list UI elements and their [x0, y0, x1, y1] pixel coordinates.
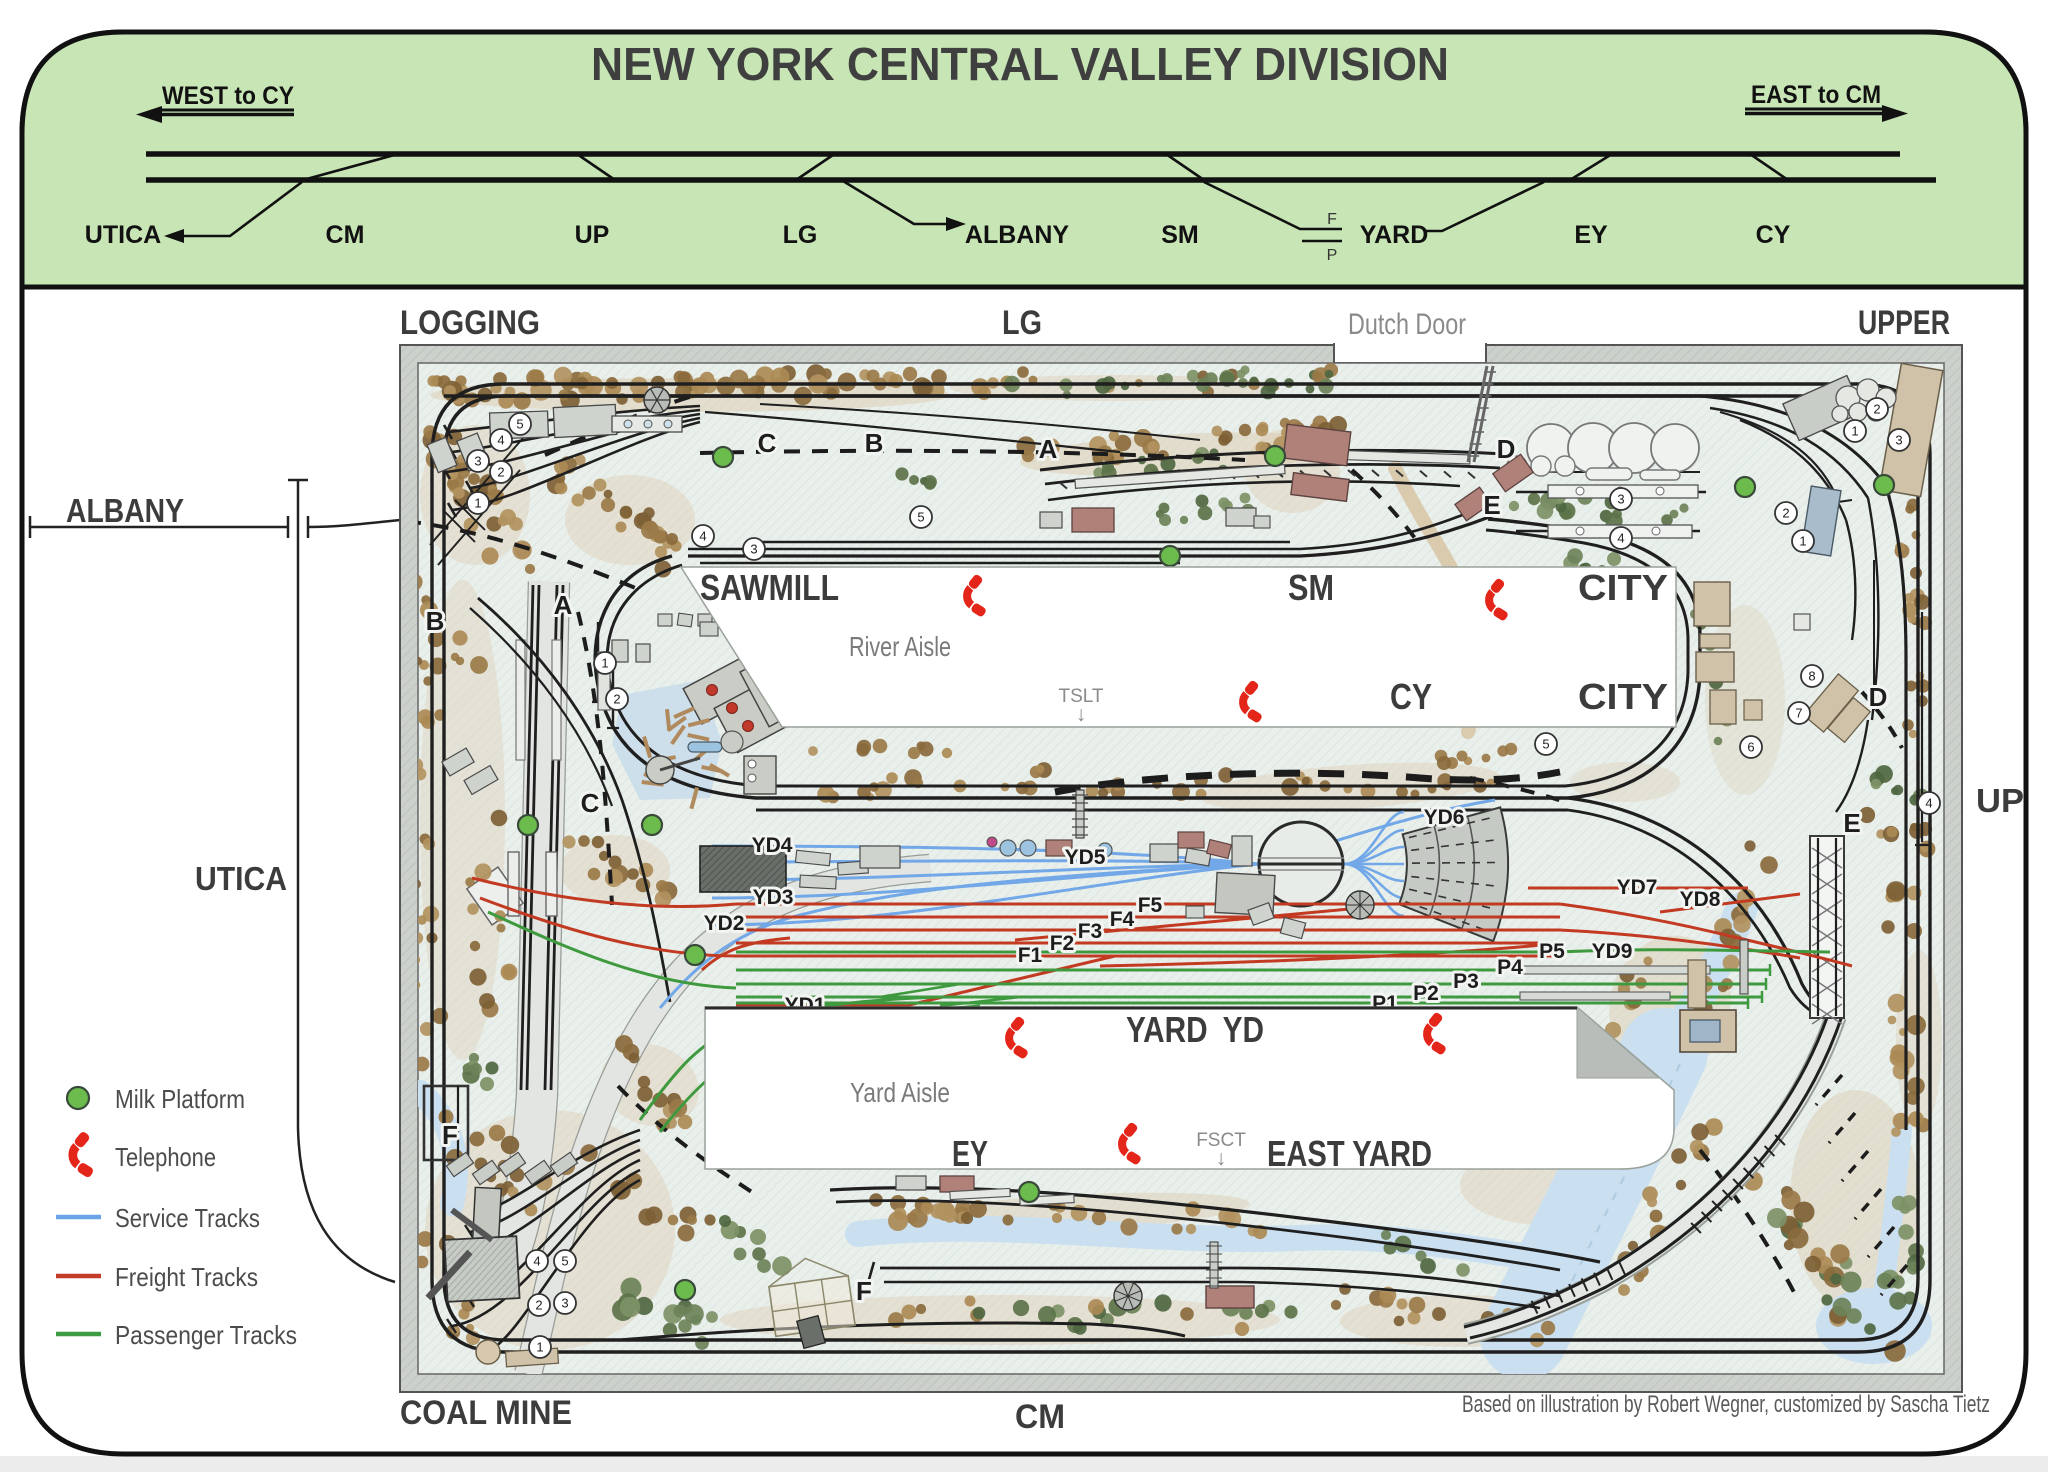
- svg-text:YD5: YD5: [1065, 846, 1106, 869]
- svg-text:Dutch Door: Dutch Door: [1348, 308, 1466, 341]
- svg-text:EY: EY: [952, 1133, 988, 1174]
- svg-text:2: 2: [1782, 506, 1789, 521]
- svg-text:2: 2: [613, 692, 620, 707]
- svg-text:SAWMILL: SAWMILL: [700, 567, 839, 608]
- svg-text:CM: CM: [1015, 1398, 1065, 1436]
- svg-text:5: 5: [561, 1254, 568, 1269]
- svg-text:B: B: [865, 428, 884, 458]
- svg-text:P5: P5: [1539, 940, 1565, 963]
- svg-text:7: 7: [1795, 706, 1802, 721]
- svg-text:CY: CY: [1756, 221, 1791, 249]
- svg-text:Milk Platform: Milk Platform: [115, 1084, 245, 1114]
- svg-text:Telephone: Telephone: [115, 1142, 216, 1172]
- svg-text:5: 5: [516, 417, 523, 432]
- svg-text:CY: CY: [1390, 676, 1432, 717]
- svg-text:F4: F4: [1110, 908, 1135, 931]
- svg-text:YD6: YD6: [1424, 806, 1465, 829]
- svg-text:2: 2: [1873, 402, 1880, 417]
- svg-text:Passenger Tracks: Passenger Tracks: [115, 1320, 297, 1350]
- svg-text:EAST YARD: EAST YARD: [1267, 1133, 1432, 1174]
- svg-text:1: 1: [474, 496, 481, 511]
- svg-text:SM: SM: [1161, 221, 1199, 249]
- svg-text:1: 1: [1851, 424, 1858, 439]
- svg-text:ALBANY: ALBANY: [965, 221, 1069, 249]
- svg-text:4: 4: [1617, 531, 1624, 546]
- svg-text:B: B: [426, 606, 445, 636]
- svg-text:ALBANY: ALBANY: [66, 492, 184, 529]
- svg-text:SM: SM: [1288, 567, 1334, 608]
- svg-text:Freight Tracks: Freight Tracks: [115, 1262, 258, 1292]
- svg-text:EAST to CM: EAST to CM: [1751, 81, 1881, 109]
- svg-text:YD3: YD3: [753, 886, 794, 909]
- svg-text:F3: F3: [1078, 920, 1103, 943]
- svg-text:LOGGING: LOGGING: [400, 304, 540, 342]
- svg-text:F: F: [856, 1276, 872, 1306]
- svg-text:F5: F5: [1138, 894, 1163, 917]
- svg-text:4: 4: [699, 529, 706, 544]
- svg-text:UPPER: UPPER: [1858, 304, 1950, 342]
- svg-text:YD7: YD7: [1617, 876, 1658, 899]
- svg-text:LG: LG: [1002, 304, 1042, 342]
- svg-text:4: 4: [1925, 796, 1932, 811]
- svg-text:P3: P3: [1453, 970, 1479, 993]
- svg-text:4: 4: [497, 433, 504, 448]
- svg-text:YD9: YD9: [1592, 940, 1633, 963]
- svg-text:A: A: [554, 590, 573, 620]
- svg-text:UTICA: UTICA: [85, 221, 161, 249]
- svg-text:P: P: [1327, 247, 1338, 264]
- svg-text:YARD: YARD: [1360, 221, 1429, 249]
- svg-text:↓: ↓: [1076, 703, 1087, 726]
- svg-text:F2: F2: [1050, 932, 1075, 955]
- svg-text:COAL MINE: COAL MINE: [400, 1394, 572, 1432]
- svg-text:3: 3: [1895, 433, 1902, 448]
- svg-text:2: 2: [535, 1298, 542, 1313]
- svg-text:4: 4: [533, 1254, 540, 1269]
- svg-text:1: 1: [601, 656, 608, 671]
- svg-text:YARD YD: YARD YD: [1126, 1009, 1264, 1050]
- svg-text:↓: ↓: [1216, 1147, 1227, 1170]
- svg-text:UP: UP: [575, 221, 610, 249]
- svg-text:LG: LG: [783, 221, 818, 249]
- svg-text:A: A: [1039, 434, 1058, 464]
- svg-text:E: E: [1843, 808, 1860, 838]
- svg-text:P4: P4: [1497, 956, 1523, 979]
- svg-text:2: 2: [497, 465, 504, 480]
- svg-text:C: C: [758, 428, 777, 458]
- svg-text:3: 3: [1617, 492, 1624, 507]
- svg-text:UP: UP: [1976, 782, 2024, 819]
- svg-text:F: F: [1327, 211, 1337, 228]
- svg-text:1: 1: [1799, 534, 1806, 549]
- svg-text:NEW YORK CENTRAL VALLEY DIVISI: NEW YORK CENTRAL VALLEY DIVISION: [591, 38, 1449, 90]
- svg-text:UTICA: UTICA: [195, 860, 287, 897]
- svg-text:Based on illustration by Rober: Based on illustration by Robert Wegner, …: [1462, 1391, 1990, 1418]
- svg-text:F1: F1: [1018, 944, 1043, 967]
- svg-text:5: 5: [917, 510, 924, 525]
- svg-text:5: 5: [1542, 737, 1549, 752]
- svg-text:F: F: [442, 1120, 458, 1150]
- svg-text:Service Tracks: Service Tracks: [115, 1203, 260, 1233]
- svg-text:3: 3: [750, 542, 757, 557]
- svg-text:YD8: YD8: [1680, 888, 1721, 911]
- svg-text:6: 6: [1747, 740, 1754, 755]
- svg-text:3: 3: [561, 1296, 568, 1311]
- svg-text:C: C: [581, 788, 600, 818]
- svg-text:CM: CM: [326, 221, 365, 249]
- svg-text:CITY: CITY: [1578, 567, 1668, 608]
- svg-text:YD2: YD2: [704, 912, 745, 935]
- svg-text:3: 3: [474, 454, 481, 469]
- svg-text:P2: P2: [1413, 982, 1439, 1005]
- svg-text:8: 8: [1808, 669, 1815, 684]
- svg-text:1: 1: [536, 1340, 543, 1355]
- svg-text:CITY: CITY: [1578, 676, 1668, 717]
- svg-text:D: D: [1869, 682, 1888, 712]
- svg-text:WEST to CY: WEST to CY: [162, 82, 294, 110]
- svg-text:River Aisle: River Aisle: [849, 631, 951, 662]
- svg-text:D: D: [1497, 434, 1516, 464]
- svg-text:E: E: [1483, 490, 1500, 520]
- svg-text:EY: EY: [1574, 221, 1608, 249]
- svg-text:Yard Aisle: Yard Aisle: [850, 1077, 950, 1108]
- svg-text:YD4: YD4: [752, 834, 793, 857]
